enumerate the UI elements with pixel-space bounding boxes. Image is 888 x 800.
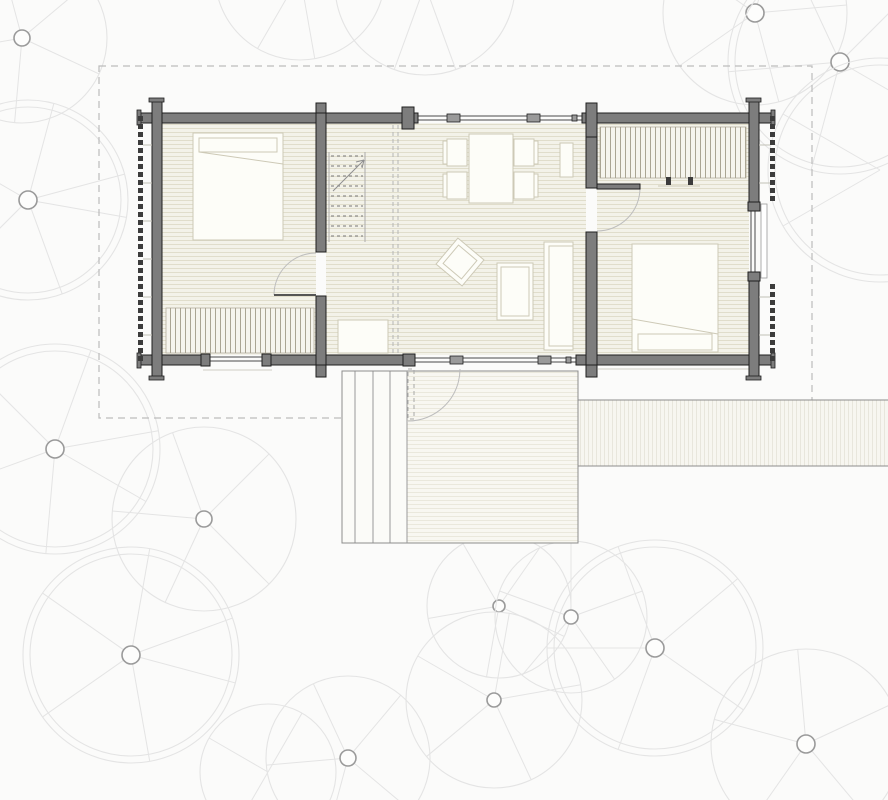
tree-branch [618,648,655,749]
deck-and-walkway-layer [203,369,888,543]
tree-branch [425,0,456,70]
tree-branch [755,13,779,102]
log-wall [316,296,326,365]
log-end [770,340,775,345]
tree-branch [204,519,269,584]
log-end [770,308,775,313]
entry-cabinet-body [338,320,388,353]
dining-table-body [469,134,513,203]
wall-post [201,354,210,366]
tree-branch [28,174,125,200]
corner-notch-cap [746,376,761,380]
tree-branch [28,103,54,200]
tree-branch [209,738,268,772]
tree-branch [783,114,880,170]
tree-trunk [340,750,356,766]
log-wall [152,101,162,377]
log-end [138,140,143,145]
entry-deck-planks [407,371,578,543]
window-mullion [538,356,551,364]
sofa [544,242,573,350]
tree-canopy [266,676,430,800]
tree-branch [234,772,268,800]
log-end [770,196,775,201]
window-mullion [447,114,460,122]
dining-chair-body [447,139,467,166]
floor-plan-canvas [0,0,888,800]
tree-branch [348,695,401,758]
corner-notch-cap [149,98,164,102]
tree-branch [22,0,87,38]
log-wall [749,101,759,207]
tree-branch [806,704,888,744]
tree-branch [258,0,301,49]
wardrobe-east [600,127,746,178]
tree-branch [806,744,867,800]
tree-branch [55,350,91,449]
log-end [770,148,775,153]
dining-chair-body [447,172,467,199]
dining-chair-back [534,174,538,197]
log-wall [582,113,772,123]
log-end [770,356,775,361]
dining-chair-back [443,174,447,197]
log-end [770,124,775,129]
log-wall [749,277,759,377]
log-end [138,212,143,217]
tree-branch [798,649,806,744]
tree-trunk [564,610,578,624]
tree-branch [0,449,55,485]
log-end [138,196,143,201]
dining-chair [443,172,467,199]
tree-trunk [646,639,664,657]
tree-canopy [0,344,160,554]
tree-canopy [335,0,515,75]
tree-trunk [746,4,764,22]
tree-branch [755,5,847,13]
tree-branch [752,744,806,800]
tree [427,534,571,678]
tree [23,547,239,763]
log-end [770,156,775,161]
tree-branch [680,0,755,13]
wall-post [316,365,326,377]
tree-branch [494,700,531,780]
log-end [138,252,143,257]
log-end [138,292,143,297]
tree-branch [131,655,150,761]
tree [406,612,582,788]
log-end [138,244,143,249]
tree [266,676,430,800]
tree-branch [783,170,880,226]
tree-branch [486,606,499,677]
tree-branch [28,200,126,217]
tree-branch [15,38,22,123]
tree-branch [43,655,131,717]
tree-branch [131,618,232,655]
tree [112,427,296,611]
coffee-table-body [497,263,533,320]
tree-trunk [122,646,140,664]
log-end [138,316,143,321]
entry-steps [342,371,407,543]
tree-branch [655,648,743,710]
sofa-body [544,242,573,350]
tree-branch [204,454,269,519]
kitchen-unit [560,143,573,177]
wall-post [402,107,414,129]
log-end [138,356,143,361]
tree-branch [300,0,315,59]
dining-chair [443,139,467,166]
tree-trunk [19,191,37,209]
log-end [770,348,775,353]
log-wall [576,355,772,365]
kitchen-unit-body [560,143,573,177]
log-end [138,300,143,305]
log-end [138,180,143,185]
log-wall [140,113,418,123]
wall-post [748,202,760,211]
log-end [138,204,143,209]
log-end [138,348,143,353]
dining-chair-body [514,139,534,166]
wardrobe-west-stripes [166,308,314,353]
log-end [138,156,143,161]
log-end [770,132,775,137]
tree-canopy-inner [0,351,153,547]
log-end [770,284,775,289]
tree-branch [714,719,806,744]
tree-canopy [215,0,385,60]
log-end [138,236,143,241]
tree-canopy [200,704,336,800]
log-end [138,260,143,265]
window-mullion [527,114,540,122]
wall-post [262,354,271,366]
log-end [770,116,775,121]
entry-cabinet [338,320,388,353]
log-end [138,188,143,193]
log-end [770,300,775,305]
tree-branch [0,200,28,271]
tree-branch [55,449,146,502]
tree-branch [131,549,150,655]
dining-chair-body [514,172,534,199]
tree-branch [499,547,540,606]
log-end [770,180,775,185]
tree-branch [0,375,55,449]
log-end [770,188,775,193]
tree-branch [173,433,204,519]
wall-post [316,103,326,113]
log-end [138,164,143,169]
tree-branch [463,544,499,606]
bed-east-body [632,244,718,352]
tree-branch [22,38,99,74]
log-end [138,124,143,129]
tree-branch [655,579,738,648]
log-wall [140,355,207,365]
tree [335,0,515,75]
tree-trunk [797,735,815,753]
log-end [138,268,143,273]
window-mullion [450,356,463,364]
log-end [138,324,143,329]
bed-west [193,133,283,240]
tree-branch [494,613,509,700]
dining-table [469,134,513,203]
dining-chair-back [443,141,447,164]
dining-chair-back [534,141,538,164]
tree-branch [571,591,642,617]
tree-trunk [46,440,64,458]
log-wall [316,113,326,252]
window-tick [566,357,571,363]
tree-branch [394,0,425,70]
tree-canopy-inner [0,107,121,293]
wall-post [586,103,597,137]
tree [0,100,128,300]
wardrobe-east-stripes [600,127,746,178]
log-end [138,172,143,177]
wardrobe-knob [688,177,693,185]
log-end [770,324,775,329]
log-end [770,316,775,321]
log-end [770,140,775,145]
east-window-sill [761,204,767,278]
window-tick [572,115,577,121]
cabin-floor-plan-drawing [0,0,888,800]
corner-notch-cap [149,376,164,380]
tree-trunk [14,30,30,46]
log-end [138,116,143,121]
log-wall [586,232,597,365]
tree-branch [618,547,655,648]
log-end [138,308,143,313]
log-wall [266,355,405,365]
wardrobe-west [166,308,314,353]
tree-branch [112,511,204,519]
tree-trunk [196,511,212,527]
tree-trunk [487,693,501,707]
log-end [138,340,143,345]
log-end [138,132,143,137]
coffee-table [497,263,533,320]
tree-branch [418,656,494,700]
tree-branch [348,758,411,800]
log-end [138,332,143,337]
log-end [770,172,775,177]
wardrobe-knob [666,177,671,185]
door-bedroom-east-leaf [597,184,640,189]
tree [200,704,336,800]
wall-post [748,272,760,281]
log-end [138,284,143,289]
log-end [138,220,143,225]
log-end [770,332,775,337]
walkway-planks [578,400,888,466]
log-end [138,276,143,281]
tree-branch [728,62,840,72]
log-end [138,148,143,153]
bed-east [632,244,718,352]
tree-branch [55,431,158,449]
bed-west-body [193,133,283,240]
tree [663,0,847,105]
log-end [138,228,143,233]
tree [0,344,160,554]
log-end [770,292,775,297]
tree-branch [43,593,131,655]
wall-post [403,354,415,366]
tree [215,0,385,60]
tree-branch [28,200,62,294]
tree-branch [46,449,55,554]
log-end [770,164,775,169]
corner-notch-cap [746,98,761,102]
dining-chair [514,172,538,199]
tree-branch [427,700,494,757]
tree [711,649,888,800]
wall-post [586,365,597,377]
tree-branch [131,655,235,683]
dining-chair [514,139,538,166]
